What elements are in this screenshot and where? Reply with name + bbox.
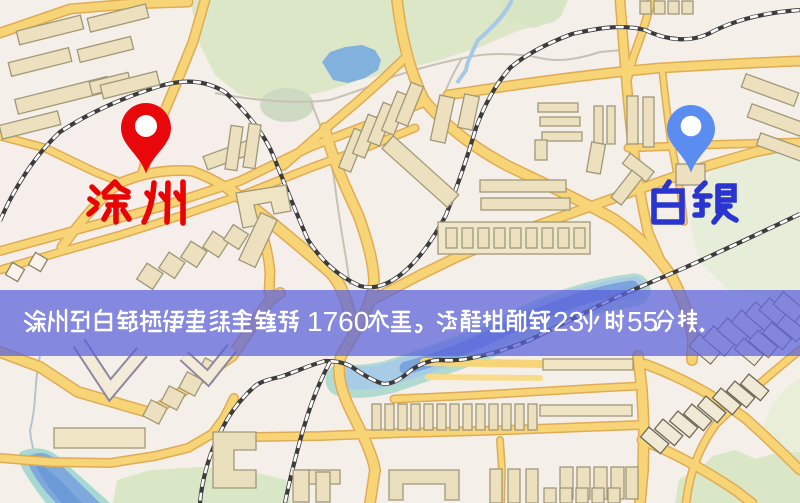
svg-text:1760: 1760 [307, 306, 369, 337]
svg-text:55: 55 [627, 306, 658, 337]
svg-text:23: 23 [553, 306, 584, 337]
